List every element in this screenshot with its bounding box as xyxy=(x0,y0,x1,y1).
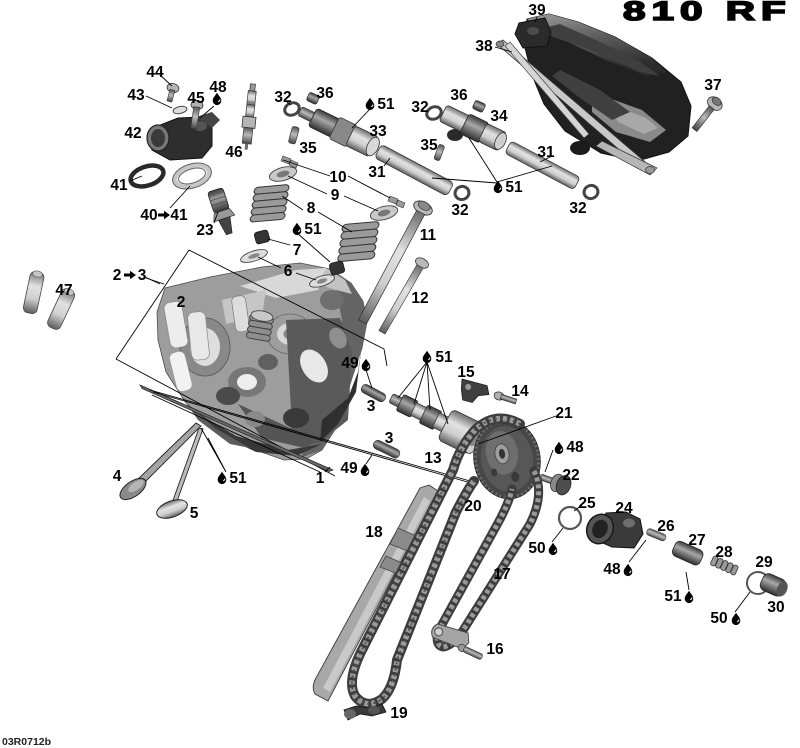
svg-text:38: 38 xyxy=(475,38,493,55)
svg-text:48: 48 xyxy=(603,561,621,578)
svg-text:33: 33 xyxy=(369,123,387,140)
svg-text:37: 37 xyxy=(704,77,721,94)
svg-text:3: 3 xyxy=(385,430,394,447)
svg-text:7: 7 xyxy=(293,242,302,259)
svg-text:6: 6 xyxy=(284,263,293,280)
svg-text:44: 44 xyxy=(146,64,164,81)
svg-text:1: 1 xyxy=(316,470,325,487)
svg-text:2: 2 xyxy=(177,294,186,311)
svg-text:32: 32 xyxy=(451,202,468,219)
svg-text:14: 14 xyxy=(511,383,529,400)
svg-text:41: 41 xyxy=(170,207,188,224)
svg-text:16: 16 xyxy=(486,641,504,658)
svg-text:15: 15 xyxy=(457,364,475,381)
svg-text:43: 43 xyxy=(127,87,145,104)
svg-text:51: 51 xyxy=(505,179,523,196)
svg-text:9: 9 xyxy=(331,187,340,204)
svg-text:10: 10 xyxy=(329,169,346,186)
svg-text:21: 21 xyxy=(555,405,573,422)
svg-text:31: 31 xyxy=(368,164,386,181)
svg-text:03R0712b: 03R0712b xyxy=(2,736,51,748)
svg-text:19: 19 xyxy=(390,705,408,722)
svg-text:3: 3 xyxy=(367,398,376,415)
svg-text:49: 49 xyxy=(340,460,358,477)
svg-text:12: 12 xyxy=(411,290,428,307)
svg-text:26: 26 xyxy=(657,518,675,535)
svg-text:18: 18 xyxy=(365,524,383,541)
svg-text:51: 51 xyxy=(229,470,247,487)
svg-text:22: 22 xyxy=(562,467,579,484)
svg-text:32: 32 xyxy=(569,200,586,217)
svg-text:42: 42 xyxy=(124,125,141,142)
svg-text:45: 45 xyxy=(187,90,205,107)
svg-text:24: 24 xyxy=(615,500,633,517)
svg-text:2: 2 xyxy=(113,267,122,284)
svg-text:32: 32 xyxy=(411,99,428,116)
svg-text:51: 51 xyxy=(304,221,322,238)
svg-text:3: 3 xyxy=(138,267,147,284)
svg-text:810 RF: 810 RF xyxy=(623,0,792,26)
svg-text:31: 31 xyxy=(537,144,555,161)
svg-text:51: 51 xyxy=(377,96,395,113)
svg-text:32: 32 xyxy=(274,89,291,106)
svg-text:48: 48 xyxy=(209,79,227,96)
svg-text:41: 41 xyxy=(110,177,128,194)
svg-text:29: 29 xyxy=(755,554,773,571)
svg-text:27: 27 xyxy=(688,532,705,549)
svg-text:13: 13 xyxy=(424,450,442,467)
svg-text:36: 36 xyxy=(316,85,334,102)
svg-text:47: 47 xyxy=(55,282,72,299)
svg-text:34: 34 xyxy=(490,108,508,125)
svg-text:30: 30 xyxy=(767,599,784,616)
svg-text:35: 35 xyxy=(420,137,438,154)
svg-text:25: 25 xyxy=(578,495,596,512)
svg-text:51: 51 xyxy=(435,349,453,366)
svg-text:51: 51 xyxy=(664,588,682,605)
svg-text:35: 35 xyxy=(299,140,317,157)
svg-text:23: 23 xyxy=(196,222,214,239)
svg-text:28: 28 xyxy=(715,544,733,561)
svg-text:46: 46 xyxy=(225,144,243,161)
svg-text:8: 8 xyxy=(307,200,316,217)
svg-text:11: 11 xyxy=(420,227,437,244)
svg-text:40: 40 xyxy=(140,207,157,224)
svg-text:50: 50 xyxy=(528,540,545,557)
svg-text:50: 50 xyxy=(710,610,727,627)
svg-text:20: 20 xyxy=(464,498,481,515)
svg-text:49: 49 xyxy=(341,355,359,372)
svg-text:4: 4 xyxy=(113,468,122,485)
svg-text:17: 17 xyxy=(493,566,510,583)
svg-text:39: 39 xyxy=(528,2,546,19)
svg-text:48: 48 xyxy=(566,439,584,456)
svg-text:5: 5 xyxy=(190,505,199,522)
svg-text:36: 36 xyxy=(450,87,468,104)
